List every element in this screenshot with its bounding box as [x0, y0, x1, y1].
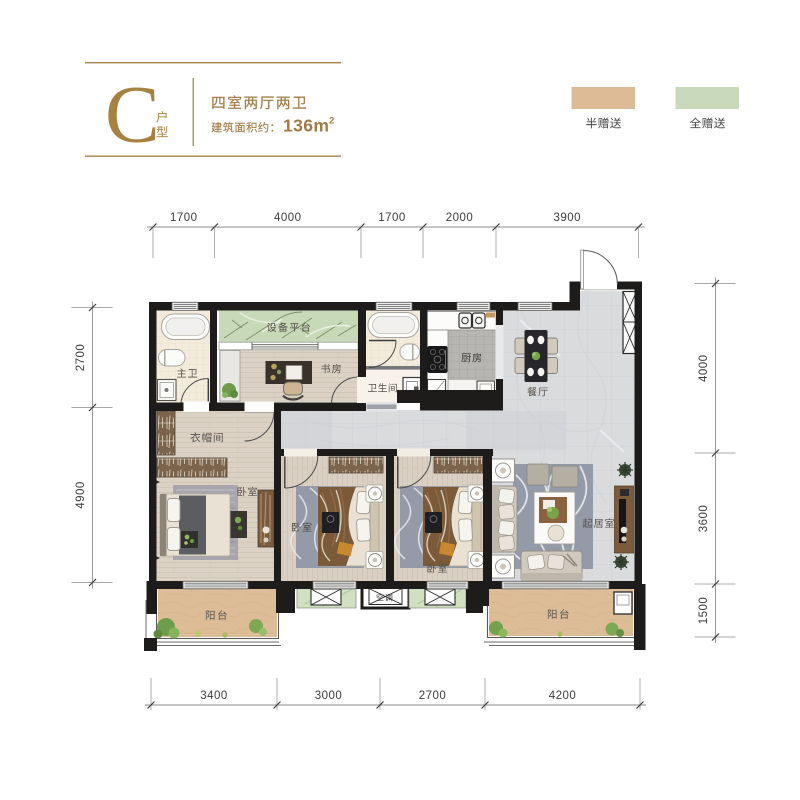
svg-text:2700: 2700 — [75, 344, 87, 372]
svg-text:4900: 4900 — [75, 481, 87, 509]
svg-text:1500: 1500 — [698, 597, 710, 625]
svg-text:2700: 2700 — [419, 690, 447, 702]
svg-text:1700: 1700 — [378, 212, 406, 224]
svg-text:4000: 4000 — [274, 212, 302, 224]
svg-text:C: C — [105, 69, 160, 160]
svg-text:136m: 136m — [283, 116, 329, 136]
svg-text:3900: 3900 — [553, 212, 581, 224]
svg-text:3000: 3000 — [315, 690, 343, 702]
svg-text:3600: 3600 — [698, 505, 710, 533]
svg-text:1700: 1700 — [170, 212, 198, 224]
svg-text:2000: 2000 — [446, 212, 474, 224]
svg-text:3400: 3400 — [200, 690, 228, 702]
svg-text:4200: 4200 — [549, 690, 577, 702]
svg-text:4000: 4000 — [698, 354, 710, 382]
svg-text:2: 2 — [329, 116, 334, 127]
